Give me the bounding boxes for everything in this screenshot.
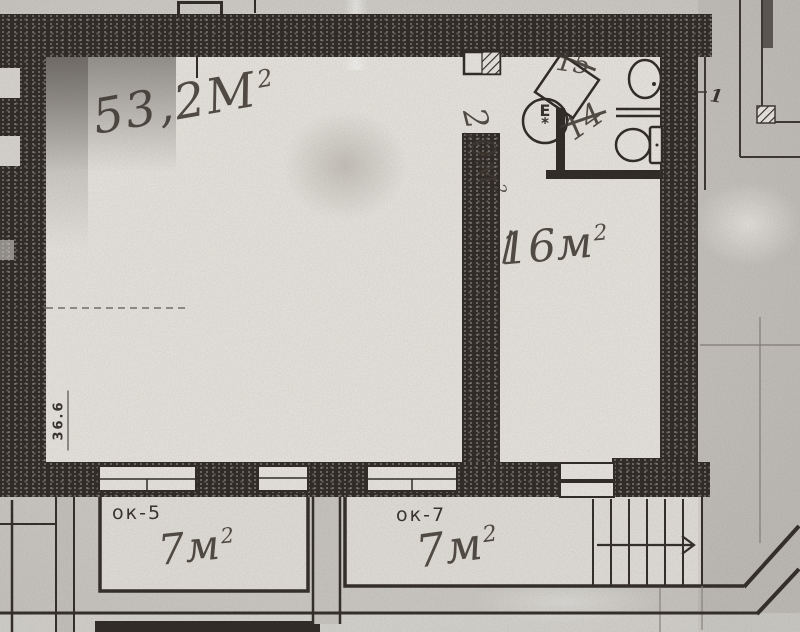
sink-icon [629,59,661,99]
window-ok5 [99,466,308,491]
annex-faint-lines [700,317,800,543]
balcony-divider-fill [314,497,339,624]
symbol-star: * [529,116,561,131]
floorplan-scan: 53,2М2 36.6 16м2 2,0м2 15 14 Е * ок-5 7м… [0,0,800,632]
stair-faint-lines [660,586,702,632]
stair-door-panels [538,463,614,497]
handwritten-area-right-room: 16м2 [498,215,611,275]
window-ok7 [367,466,457,491]
ramp-diagonals [744,526,799,614]
number-value: 15 [554,46,592,81]
window-label-ok5: ок-5 [112,502,162,524]
shelf-wall-lines [616,109,662,116]
annex-wall-piece [763,0,773,48]
stair-treads [593,497,702,586]
handwritten-area-balcony-left: 7м2 [156,518,238,575]
handwritten-area-balcony-right: 7м2 [413,515,502,579]
toilet-icon [616,127,662,163]
electrical-symbol: Е * [529,103,561,131]
handwritten-number-crossed-top: 15 [554,46,592,81]
area-value: 7м [413,517,486,579]
printed-area-mark: 36.6 [52,391,69,451]
area-sup: 2 [593,221,609,247]
annex-hatch-box [757,106,775,123]
area-sup: 2 [219,523,235,548]
area-value: 7м [156,520,222,575]
vent-hatch-box [464,52,500,74]
area-value: 16м [498,217,595,276]
